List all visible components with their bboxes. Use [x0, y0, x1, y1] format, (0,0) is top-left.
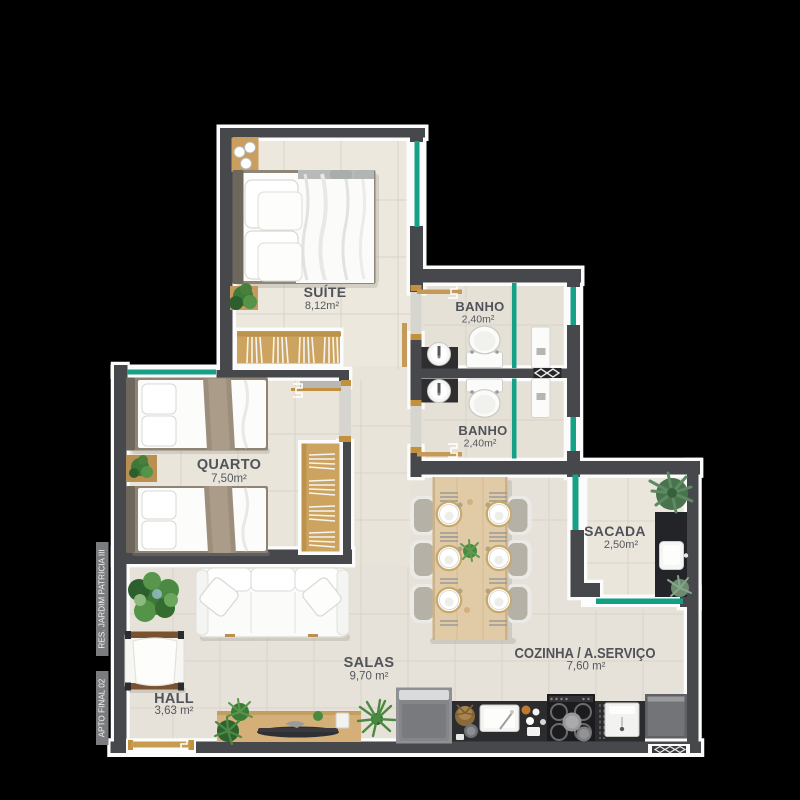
svg-text:SUÍTE: SUÍTE: [304, 284, 347, 300]
svg-text:COZINHA / A.SERVIÇO: COZINHA / A.SERVIÇO: [515, 645, 656, 662]
svg-text:2,40m²: 2,40m²: [464, 438, 497, 450]
svg-text:2,40m²: 2,40m²: [462, 314, 495, 326]
svg-text:APTO FINAL 02: APTO FINAL 02: [97, 678, 106, 737]
svg-text:QUARTO: QUARTO: [197, 457, 261, 473]
svg-text:BANHO: BANHO: [458, 423, 507, 438]
svg-text:SACADA: SACADA: [584, 523, 646, 539]
svg-text:3,63 m²: 3,63 m²: [155, 705, 194, 717]
svg-text:7,60 m²: 7,60 m²: [567, 661, 606, 673]
svg-text:7,50m²: 7,50m²: [211, 473, 247, 485]
svg-text:9,70 m²: 9,70 m²: [350, 671, 389, 683]
svg-text:2,50m²: 2,50m²: [604, 539, 639, 551]
svg-text:SALAS: SALAS: [344, 655, 395, 671]
svg-text:BANHO: BANHO: [455, 299, 504, 314]
svg-text:8,12m²: 8,12m²: [305, 300, 340, 312]
svg-text:RES. JARDIM PATRICIA III: RES. JARDIM PATRICIA III: [97, 549, 106, 648]
